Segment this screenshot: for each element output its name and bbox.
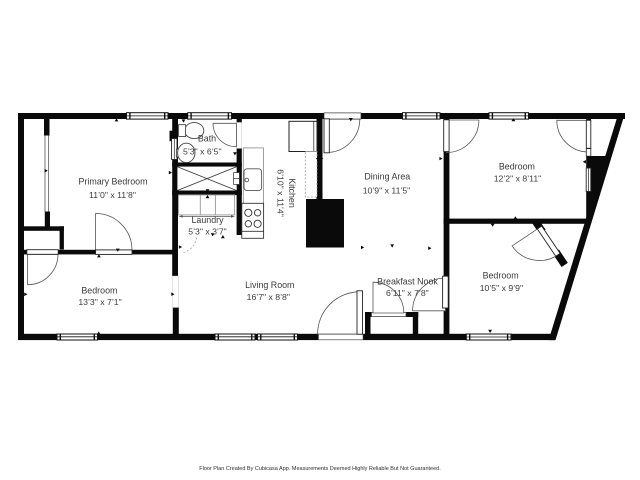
svg-text:Bath: Bath xyxy=(198,134,216,144)
svg-text:Laundry: Laundry xyxy=(191,215,224,225)
svg-text:Primary Bedroom: Primary Bedroom xyxy=(78,177,147,187)
svg-text:12’2" x 8’11": 12’2" x 8’11" xyxy=(494,173,542,183)
svg-text:10’5" x 9’9": 10’5" x 9’9" xyxy=(480,283,523,293)
svg-text:11’0" x 11’8": 11’0" x 11’8" xyxy=(89,190,136,200)
svg-text:10’9" x 11’5": 10’9" x 11’5" xyxy=(363,186,411,196)
svg-text:Bedroom: Bedroom xyxy=(499,161,535,171)
svg-text:6’10" x 11’4": 6’10" x 11’4" xyxy=(275,169,285,217)
svg-text:5’3" x 3’7": 5’3" x 3’7" xyxy=(188,226,227,236)
svg-text:Bedroom: Bedroom xyxy=(81,285,117,295)
svg-text:Living Room: Living Room xyxy=(245,280,294,290)
svg-text:Dining Area: Dining Area xyxy=(364,171,410,181)
svg-text:Bedroom: Bedroom xyxy=(483,271,519,281)
svg-text:5’3" x 6’5": 5’3" x 6’5" xyxy=(183,147,222,157)
svg-text:6’11" x 7’8": 6’11" x 7’8" xyxy=(386,288,429,298)
svg-text:16’7" x 8’8": 16’7" x 8’8" xyxy=(247,292,290,302)
svg-text:13’3" x 7’1": 13’3" x 7’1" xyxy=(78,297,121,307)
svg-text:Kitchen: Kitchen xyxy=(287,178,297,208)
svg-text:Floor Plan Created By Cubicasa: Floor Plan Created By Cubicasa App. Meas… xyxy=(199,466,441,472)
svg-text:Breakfast Nook: Breakfast Nook xyxy=(377,276,438,286)
